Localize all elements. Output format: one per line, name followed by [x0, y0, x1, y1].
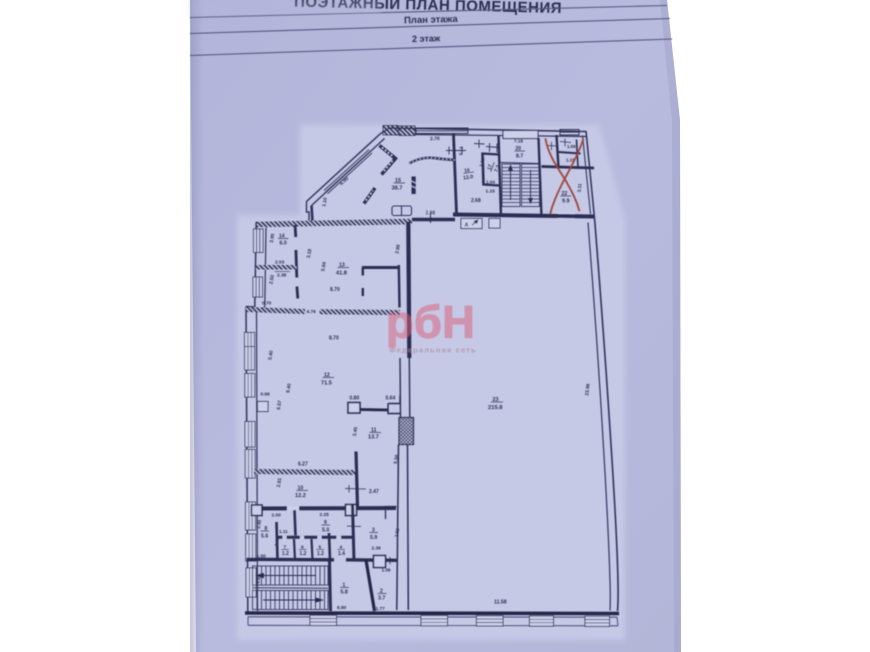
svg-text:1.08: 1.08 [382, 568, 391, 573]
svg-text:41.8: 41.8 [336, 271, 347, 277]
svg-text:1.2: 1.2 [282, 551, 289, 557]
svg-text:2.47: 2.47 [369, 489, 379, 495]
svg-text:215.8: 215.8 [488, 405, 503, 411]
svg-text:6.0: 6.0 [280, 241, 287, 247]
svg-text:2.25: 2.25 [320, 512, 330, 518]
svg-text:1.77: 1.77 [376, 606, 386, 612]
svg-text:2.76: 2.76 [430, 136, 440, 142]
svg-text:1.15: 1.15 [486, 189, 496, 195]
svg-text:3.7: 3.7 [378, 596, 385, 602]
svg-text:5.0: 5.0 [322, 528, 329, 534]
svg-text:7.18: 7.18 [514, 139, 523, 144]
svg-text:11.58: 11.58 [494, 600, 507, 606]
svg-text:5.12: 5.12 [458, 146, 464, 156]
svg-text:5.8: 5.8 [341, 590, 348, 596]
svg-text:8.70: 8.70 [330, 287, 340, 293]
svg-text:6.80: 6.80 [337, 605, 347, 611]
svg-text:1.4: 1.4 [338, 551, 345, 557]
svg-text:38.7: 38.7 [392, 186, 403, 192]
svg-text:Федеральная сеть: Федеральная сеть [389, 346, 477, 355]
svg-text:1.08: 1.08 [567, 144, 576, 149]
svg-text:А: А [465, 223, 469, 229]
svg-text:8.70: 8.70 [329, 336, 339, 342]
svg-text:4.76: 4.76 [307, 309, 317, 315]
svg-text:71.5: 71.5 [321, 381, 332, 387]
svg-text:1.04: 1.04 [486, 180, 495, 185]
svg-text:0.66: 0.66 [261, 392, 271, 398]
svg-text:0.70: 0.70 [262, 301, 272, 307]
svg-text:1.2: 1.2 [300, 551, 307, 557]
svg-text:План этажа: План этажа [404, 14, 459, 27]
svg-text:0.64: 0.64 [386, 396, 396, 402]
svg-text:5.9: 5.9 [370, 535, 377, 541]
svg-text:5.6: 5.6 [261, 534, 268, 540]
svg-text:12.2: 12.2 [295, 493, 306, 499]
svg-text:2.36: 2.36 [372, 546, 382, 552]
svg-text:3.11: 3.11 [577, 183, 583, 193]
svg-text:1.2: 1.2 [317, 551, 324, 557]
svg-text:2.38: 2.38 [277, 273, 287, 279]
svg-text:2.68: 2.68 [471, 198, 481, 204]
svg-text:2.00: 2.00 [272, 513, 282, 519]
svg-text:2.03: 2.03 [275, 260, 285, 266]
svg-text:рбН: рбН [386, 297, 475, 348]
svg-text:0.80: 0.80 [350, 396, 360, 402]
svg-text:2 этаж: 2 этаж [412, 33, 441, 44]
svg-text:1.11: 1.11 [279, 529, 288, 534]
svg-text:6.27: 6.27 [298, 462, 308, 468]
svg-text:8.7: 8.7 [516, 154, 523, 160]
svg-text:13.7: 13.7 [368, 435, 379, 441]
svg-text:9.9: 9.9 [562, 199, 570, 205]
